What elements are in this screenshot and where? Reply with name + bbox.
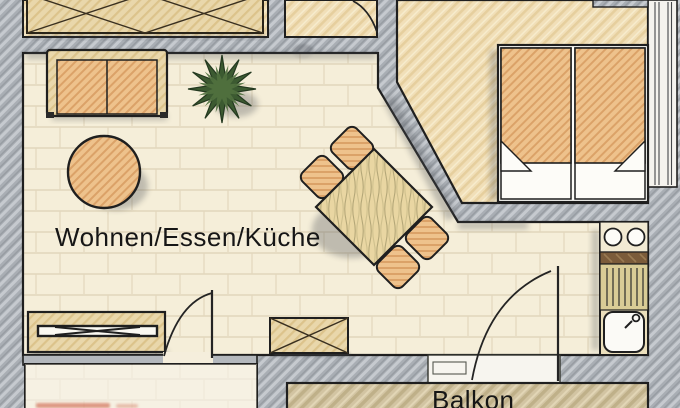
coffee-table-icon (68, 136, 140, 208)
balcony-label: Balkon (432, 385, 515, 408)
chest-icon (270, 318, 348, 353)
tv-sideboard-icon (28, 312, 165, 352)
wall-band-top-right (593, 0, 648, 7)
window-icon (648, 0, 677, 187)
duvet (501, 48, 571, 163)
double-bed-icon (498, 45, 648, 202)
floor-plan: Wohnen/Essen/Küche Balkon (0, 0, 680, 408)
living-room-label: Wohnen/Essen/Küche (55, 222, 321, 252)
terrace-tiles (25, 364, 257, 408)
floor-plan-drawing: Wohnen/Essen/Küche Balkon (0, 0, 680, 408)
entry-hall-floor (285, 0, 377, 37)
kitchenette (600, 222, 648, 355)
sofa-icon (46, 50, 168, 118)
balcony-door-sill (428, 355, 560, 383)
duvet (575, 48, 645, 163)
wardrobe-icon (27, 0, 263, 33)
sink-drainer-icon (604, 312, 644, 352)
